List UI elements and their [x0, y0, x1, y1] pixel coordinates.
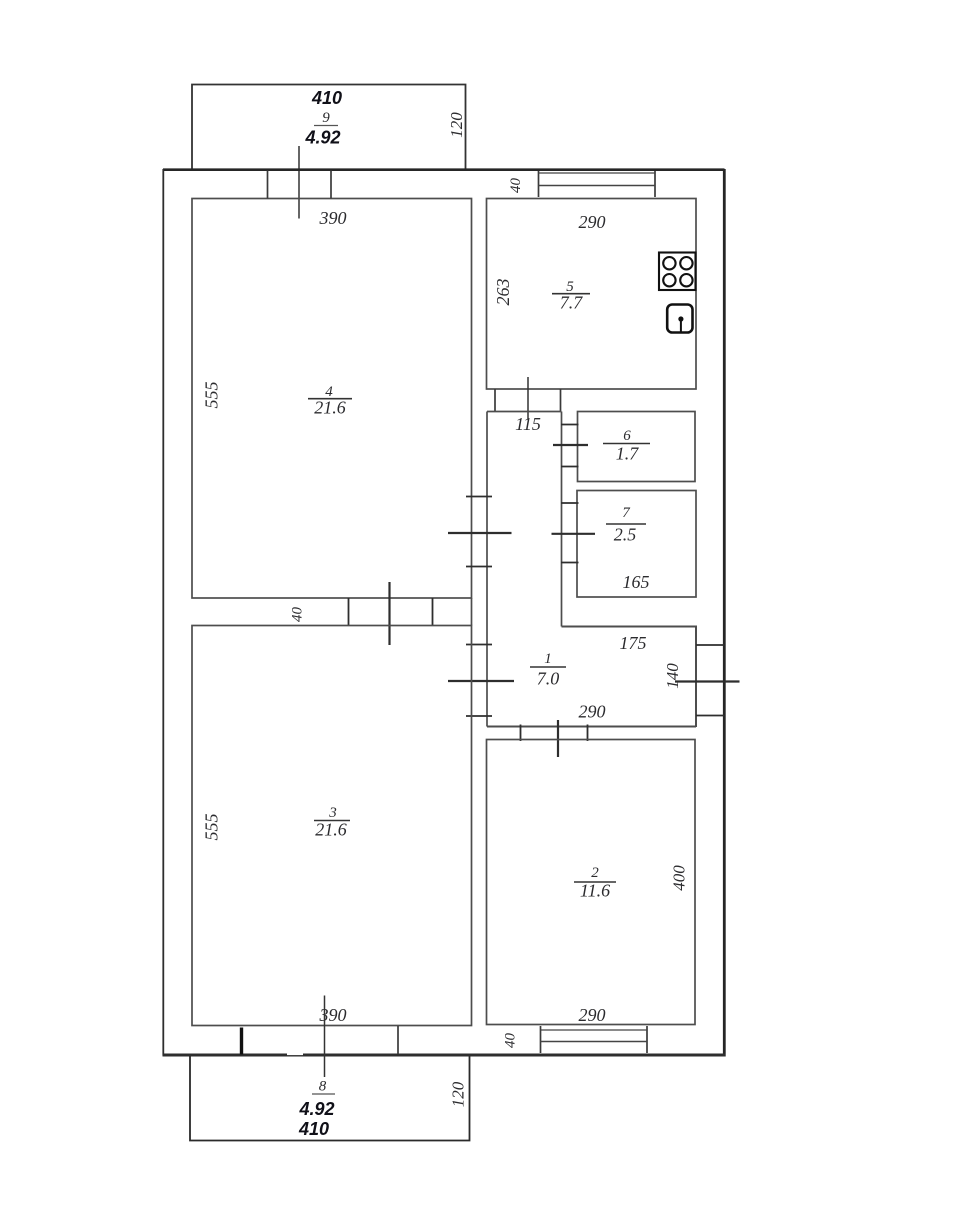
svg-text:6: 6 — [623, 428, 631, 444]
svg-text:410: 410 — [311, 88, 342, 108]
svg-text:410: 410 — [298, 1119, 329, 1139]
svg-text:555: 555 — [202, 814, 222, 841]
svg-text:40: 40 — [502, 1033, 518, 1049]
svg-text:175: 175 — [620, 633, 647, 653]
svg-text:140: 140 — [663, 663, 682, 689]
svg-text:4.92: 4.92 — [304, 128, 340, 148]
svg-text:40: 40 — [289, 607, 305, 623]
svg-text:165: 165 — [623, 572, 650, 592]
svg-text:7: 7 — [622, 505, 631, 521]
svg-text:290: 290 — [579, 212, 606, 232]
svg-text:1.7: 1.7 — [616, 444, 640, 464]
svg-text:263: 263 — [493, 279, 513, 306]
svg-text:7.7: 7.7 — [560, 293, 584, 313]
svg-text:7.0: 7.0 — [537, 669, 560, 689]
svg-text:390: 390 — [319, 1005, 347, 1025]
svg-text:290: 290 — [579, 1005, 606, 1025]
svg-text:2: 2 — [591, 865, 599, 881]
svg-text:555: 555 — [202, 382, 222, 409]
svg-text:120: 120 — [449, 1081, 468, 1107]
svg-text:400: 400 — [670, 865, 689, 891]
svg-text:290: 290 — [579, 702, 606, 722]
svg-text:120: 120 — [447, 112, 466, 138]
svg-text:2.5: 2.5 — [614, 525, 637, 545]
svg-text:40: 40 — [508, 178, 524, 194]
svg-text:115: 115 — [515, 414, 541, 434]
svg-text:1: 1 — [544, 651, 552, 667]
svg-text:11.6: 11.6 — [580, 881, 610, 901]
svg-text:21.6: 21.6 — [314, 398, 346, 418]
svg-text:8: 8 — [319, 1079, 327, 1095]
svg-text:390: 390 — [319, 208, 347, 228]
svg-text:21.6: 21.6 — [315, 820, 347, 840]
svg-text:4.92: 4.92 — [298, 1099, 334, 1119]
svg-text:9: 9 — [322, 110, 330, 126]
